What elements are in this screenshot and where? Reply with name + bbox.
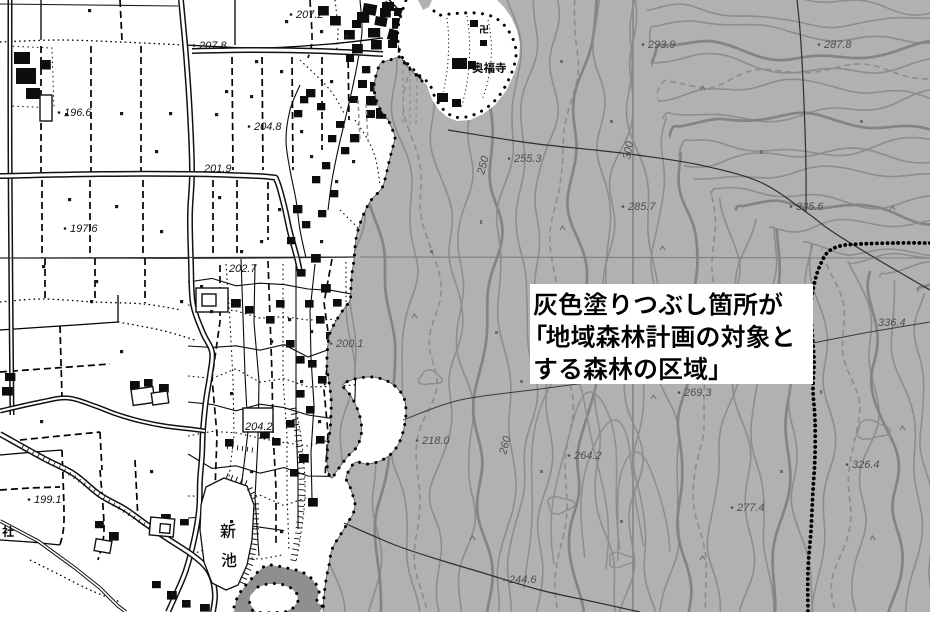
svg-text:255.3: 255.3	[513, 153, 542, 165]
svg-text:326.4: 326.4	[852, 459, 880, 471]
svg-text:335.6: 335.6	[796, 201, 824, 213]
svg-text:269.3: 269.3	[683, 387, 712, 399]
svg-text:207.8: 207.8	[198, 40, 227, 52]
svg-text:202.7: 202.7	[228, 263, 257, 275]
svg-text:293.9: 293.9	[647, 39, 676, 51]
svg-text:336.4: 336.4	[878, 317, 906, 329]
svg-text:199.1: 199.1	[34, 494, 62, 506]
svg-text:264.2: 264.2	[573, 450, 602, 462]
svg-text:244.6: 244.6	[508, 574, 537, 586]
svg-text:204.2: 204.2	[244, 421, 273, 433]
svg-text:285.7: 285.7	[627, 201, 656, 213]
svg-text:277.4: 277.4	[736, 502, 765, 514]
svg-text:207.2: 207.2	[295, 9, 324, 21]
svg-text:196.6: 196.6	[64, 107, 92, 119]
svg-text:201.9: 201.9	[203, 163, 232, 175]
svg-text:287.8: 287.8	[823, 39, 852, 51]
svg-text:197.6: 197.6	[70, 223, 98, 235]
svg-text:204.8: 204.8	[253, 121, 282, 133]
svg-text:218.0: 218.0	[421, 435, 450, 447]
svg-text:200.1: 200.1	[335, 338, 364, 350]
